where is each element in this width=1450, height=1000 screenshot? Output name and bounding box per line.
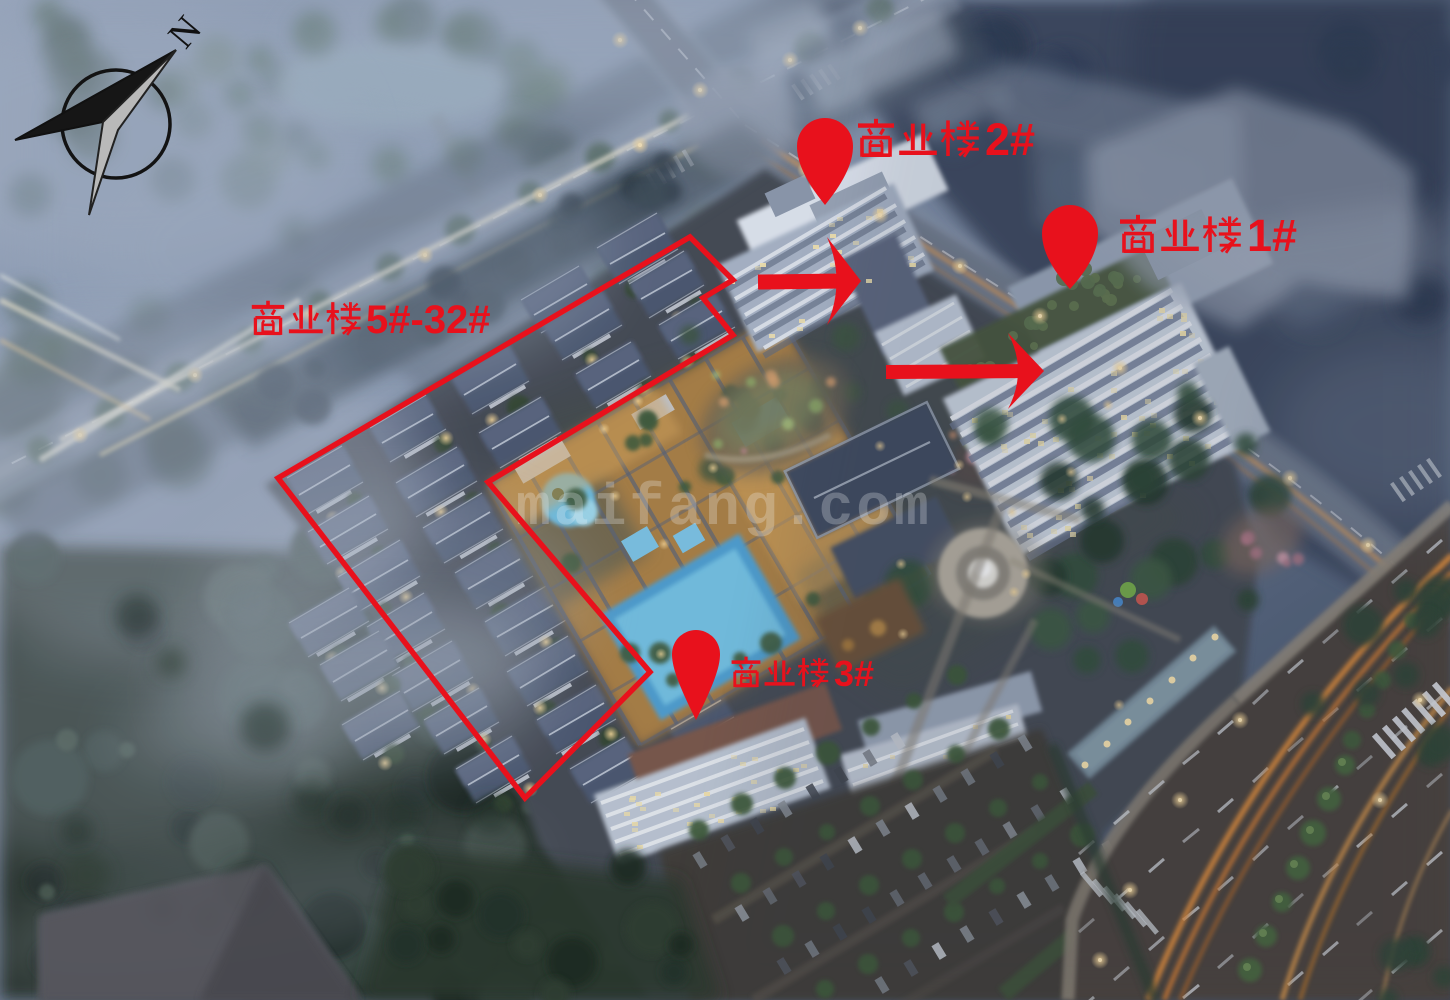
svg-text:maifang.com: maifang.com bbox=[516, 477, 932, 542]
svg-text:1#: 1# bbox=[1247, 210, 1297, 261]
svg-text:2#: 2# bbox=[985, 114, 1035, 165]
svg-text:5#-32#: 5#-32# bbox=[366, 298, 491, 342]
svg-text:3#: 3# bbox=[834, 653, 874, 694]
